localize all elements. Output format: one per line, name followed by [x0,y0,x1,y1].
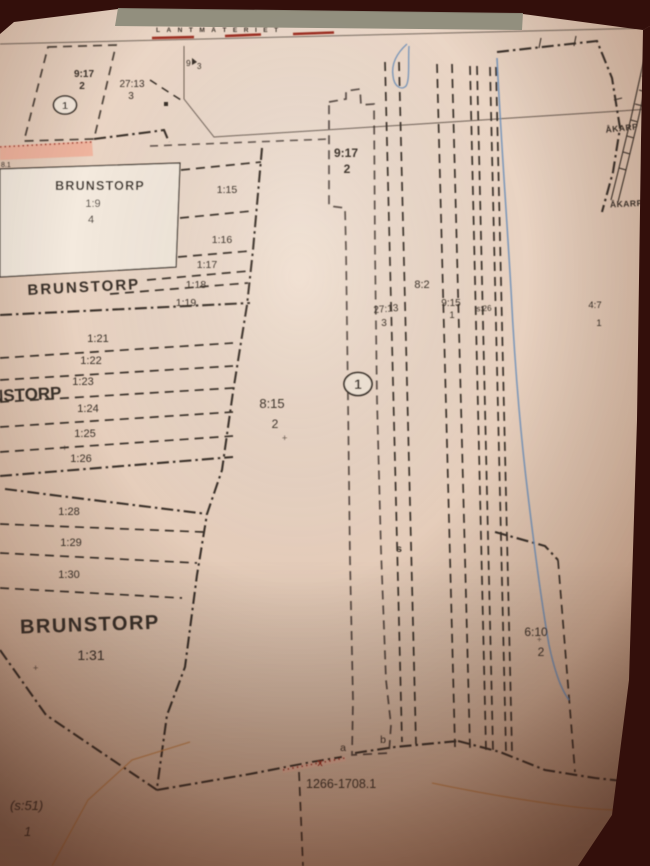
map-canvas: LANTMÄTERIET 9 3 9:17 2 1 27:13 3 8.1 BR… [0,0,650,866]
bottom-shade [0,560,650,866]
photographed-cadastral-map: LANTMÄTERIET 9 3 9:17 2 1 27:13 3 8.1 BR… [0,0,650,866]
